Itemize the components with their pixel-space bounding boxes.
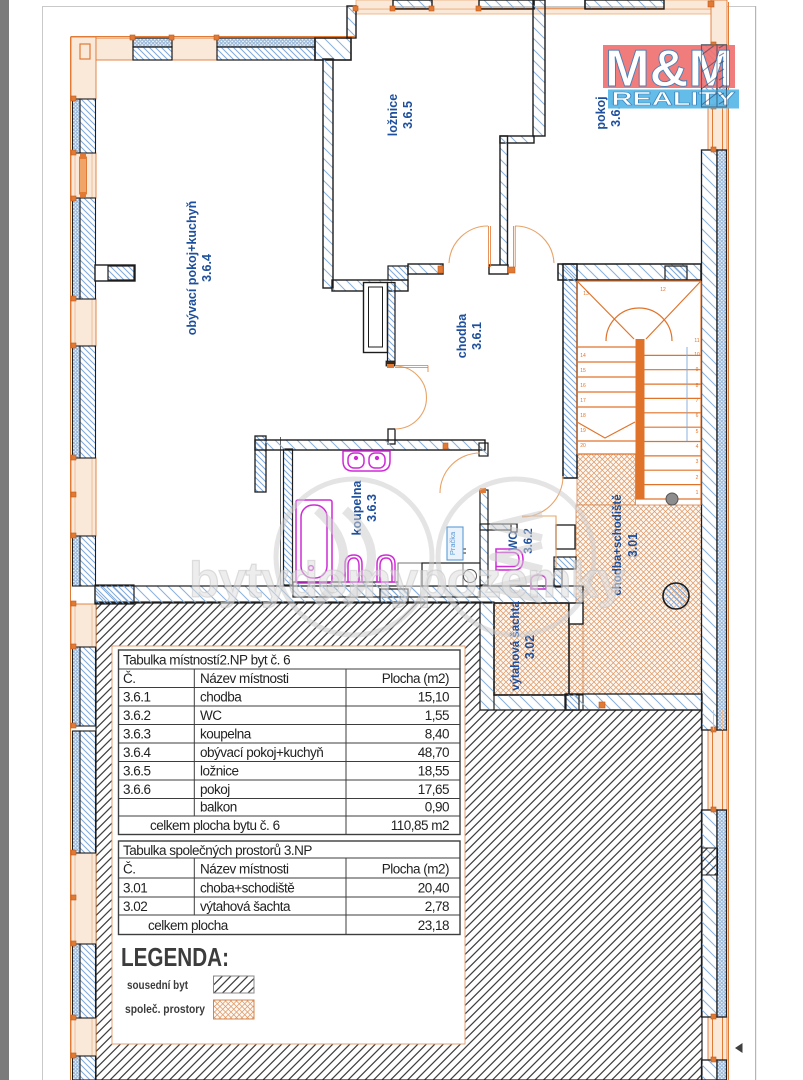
svg-text:3.6.1: 3.6.1 bbox=[123, 690, 151, 705]
svg-text:sousední byt: sousední byt bbox=[127, 980, 188, 992]
svg-text:23,18: 23,18 bbox=[418, 918, 449, 933]
svg-text:11: 11 bbox=[694, 338, 699, 344]
svg-text:koupelna: koupelna bbox=[200, 727, 252, 742]
svg-text:12: 12 bbox=[660, 287, 666, 293]
svg-text:3.01: 3.01 bbox=[123, 881, 147, 896]
svg-text:3: 3 bbox=[696, 459, 699, 465]
svg-text:2,78: 2,78 bbox=[425, 899, 449, 914]
svg-text:3.6.3: 3.6.3 bbox=[123, 727, 151, 742]
svg-text:obývací pokoj+kuchyň: obývací pokoj+kuchyň bbox=[185, 201, 199, 335]
svg-text:3.6.5: 3.6.5 bbox=[401, 101, 415, 129]
svg-text:pokoj: pokoj bbox=[594, 96, 608, 129]
svg-text:3.6.3: 3.6.3 bbox=[365, 494, 379, 522]
svg-text:WC: WC bbox=[200, 708, 222, 723]
svg-text:48,70: 48,70 bbox=[418, 745, 449, 760]
svg-text:bytydomypozemky: bytydomypozemky bbox=[189, 552, 625, 608]
svg-text:15: 15 bbox=[580, 368, 586, 374]
svg-text:ložnice: ložnice bbox=[200, 764, 239, 779]
svg-text:8: 8 bbox=[696, 383, 699, 389]
svg-text:Plocha (m2): Plocha (m2) bbox=[382, 671, 449, 686]
svg-text:Č.: Č. bbox=[123, 862, 136, 877]
svg-text:110,85 m2: 110,85 m2 bbox=[391, 818, 449, 833]
svg-text:celkem plocha bytu č. 6: celkem plocha bytu č. 6 bbox=[150, 818, 280, 833]
svg-text:LEGENDA:: LEGENDA: bbox=[121, 942, 229, 972]
svg-text:3.6.4: 3.6.4 bbox=[123, 745, 152, 760]
svg-text:3.6.4: 3.6.4 bbox=[200, 254, 214, 282]
svg-text:1: 1 bbox=[696, 490, 699, 496]
svg-text:3.01: 3.01 bbox=[626, 533, 640, 557]
svg-text:pokoj: pokoj bbox=[200, 782, 230, 797]
svg-text:výtahová šachta: výtahová šachta bbox=[200, 899, 291, 914]
svg-text:ložnice: ložnice bbox=[386, 94, 400, 136]
svg-text:chodba: chodba bbox=[455, 313, 469, 358]
svg-text:balkon: balkon bbox=[200, 800, 237, 815]
svg-text:3.02: 3.02 bbox=[123, 899, 147, 914]
svg-text:20,40: 20,40 bbox=[418, 881, 449, 896]
svg-text:6: 6 bbox=[696, 413, 699, 419]
svg-text:společ. prostory: společ. prostory bbox=[125, 1004, 206, 1016]
svg-text:3.6.6: 3.6.6 bbox=[123, 782, 151, 797]
svg-text:17,65: 17,65 bbox=[418, 782, 449, 797]
svg-text:17: 17 bbox=[580, 398, 586, 404]
svg-text:obývací pokoj+kuchyň: obývací pokoj+kuchyň bbox=[200, 745, 323, 760]
svg-text:18,55: 18,55 bbox=[418, 764, 449, 779]
svg-text:7: 7 bbox=[696, 398, 699, 404]
svg-text:3.6.5: 3.6.5 bbox=[123, 764, 151, 779]
svg-text:3.6.2: 3.6.2 bbox=[123, 708, 151, 723]
svg-text:Název místnosti: Název místnosti bbox=[200, 862, 289, 877]
svg-text:2: 2 bbox=[696, 475, 699, 481]
svg-text:Plocha (m2): Plocha (m2) bbox=[382, 862, 449, 877]
svg-text:výtahová šachta: výtahová šachta bbox=[510, 601, 522, 691]
svg-text:8,40: 8,40 bbox=[425, 727, 449, 742]
svg-text:1,55: 1,55 bbox=[425, 708, 449, 723]
svg-text:0,90: 0,90 bbox=[425, 800, 449, 815]
svg-text:14: 14 bbox=[580, 353, 586, 359]
svg-text:16: 16 bbox=[580, 383, 586, 389]
svg-text:19: 19 bbox=[580, 428, 586, 434]
svg-text:15,10: 15,10 bbox=[418, 690, 449, 705]
svg-text:Název místnosti: Název místnosti bbox=[200, 671, 289, 686]
svg-text:4: 4 bbox=[696, 444, 699, 450]
svg-text:18: 18 bbox=[580, 413, 586, 419]
svg-text:Tabulka místností2.NP byt č. 6: Tabulka místností2.NP byt č. 6 bbox=[123, 653, 290, 668]
svg-text:20: 20 bbox=[580, 443, 586, 449]
svg-text:Tabulka společných prostorů 3.: Tabulka společných prostorů 3.NP bbox=[123, 843, 312, 858]
svg-text:13: 13 bbox=[583, 291, 589, 297]
svg-text:chodba: chodba bbox=[200, 690, 242, 705]
svg-text:9: 9 bbox=[696, 367, 699, 373]
svg-text:choba+schodiště: choba+schodiště bbox=[200, 881, 294, 896]
svg-text:Č.: Č. bbox=[123, 671, 136, 686]
svg-text:celkem plocha: celkem plocha bbox=[148, 918, 229, 933]
svg-text:10: 10 bbox=[694, 352, 700, 358]
svg-text:3.6.1: 3.6.1 bbox=[470, 322, 484, 350]
svg-text:5: 5 bbox=[696, 429, 699, 435]
svg-text:3.02: 3.02 bbox=[523, 635, 537, 659]
